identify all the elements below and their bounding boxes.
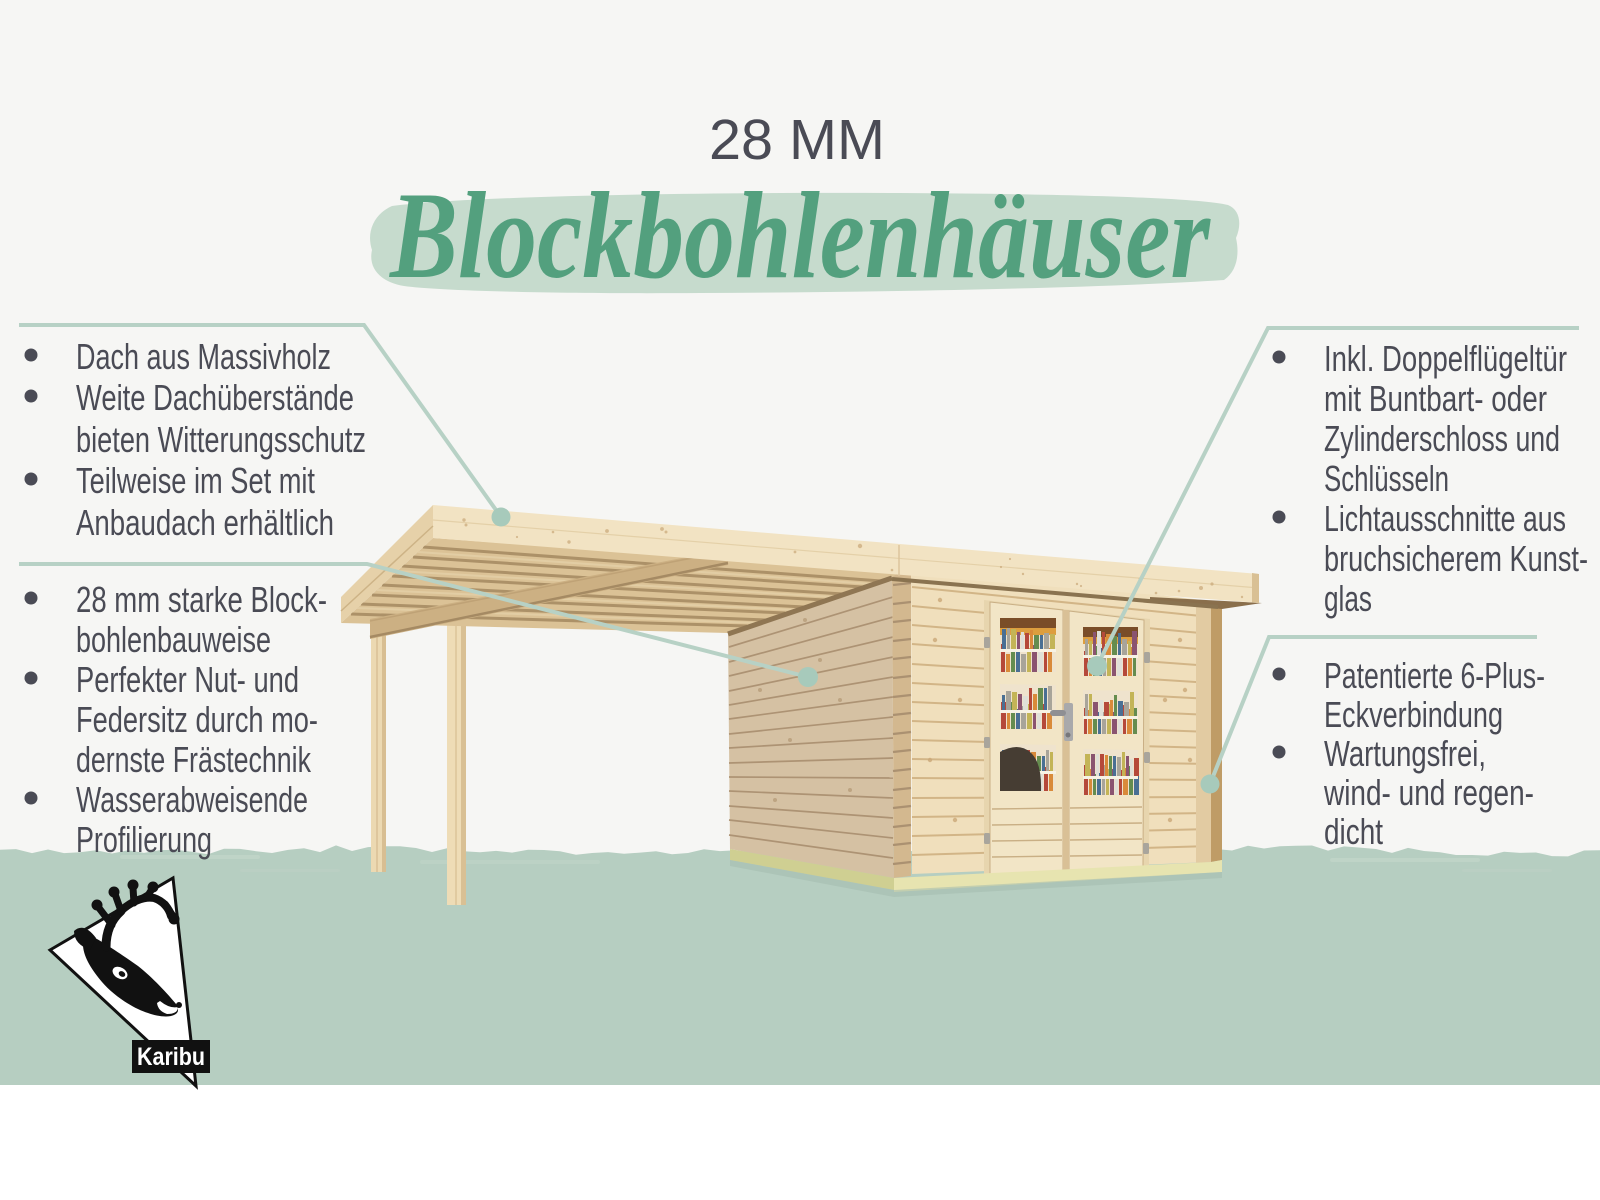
svg-text:28 mm starke Block-: 28 mm starke Block- [76,579,327,620]
svg-text:Federsitz durch mo-: Federsitz durch mo- [76,699,318,740]
svg-text:Patentierte 6-Plus-: Patentierte 6-Plus- [1324,655,1545,696]
svg-text:Wasserabweisende: Wasserabweisende [76,779,308,820]
svg-text:bohlenbauweise: bohlenbauweise [76,619,271,660]
svg-text:Anbaudach erhältlich: Anbaudach erhältlich [76,502,334,543]
svg-text:Wartungsfrei,: Wartungsfrei, [1324,733,1486,774]
svg-text:glas: glas [1324,578,1372,619]
svg-text:Weite Dachüberstände: Weite Dachüberstände [76,377,354,418]
svg-text:Lichtausschnitte aus: Lichtausschnitte aus [1324,498,1566,539]
svg-text:Zylinderschloss und: Zylinderschloss und [1324,418,1560,459]
svg-text:28 MM: 28 MM [709,108,885,172]
svg-text:Profilierung: Profilierung [76,819,212,860]
svg-text:Blockbohlenhäuser: Blockbohlenhäuser [388,167,1211,304]
svg-text:bruchsicherem Kunst-: bruchsicherem Kunst- [1324,538,1588,579]
svg-text:Inkl. Doppelflügeltür: Inkl. Doppelflügeltür [1324,338,1567,379]
svg-text:dicht: dicht [1324,811,1383,852]
svg-text:mit Buntbart- oder: mit Buntbart- oder [1324,378,1547,419]
svg-text:Perfekter Nut- und: Perfekter Nut- und [76,659,299,700]
svg-text:Teilweise im Set mit: Teilweise im Set mit [76,460,315,501]
svg-text:bieten Witterungsschutz: bieten Witterungsschutz [76,419,366,460]
svg-text:Karibu: Karibu [137,1043,205,1071]
svg-text:Schlüsseln: Schlüsseln [1324,458,1449,499]
svg-text:wind- und regen-: wind- und regen- [1323,772,1534,813]
svg-text:dernste Frästechnik: dernste Frästechnik [76,739,312,780]
svg-text:Eckverbindung: Eckverbindung [1324,694,1503,735]
svg-text:Dach aus Massivholz: Dach aus Massivholz [76,336,331,377]
